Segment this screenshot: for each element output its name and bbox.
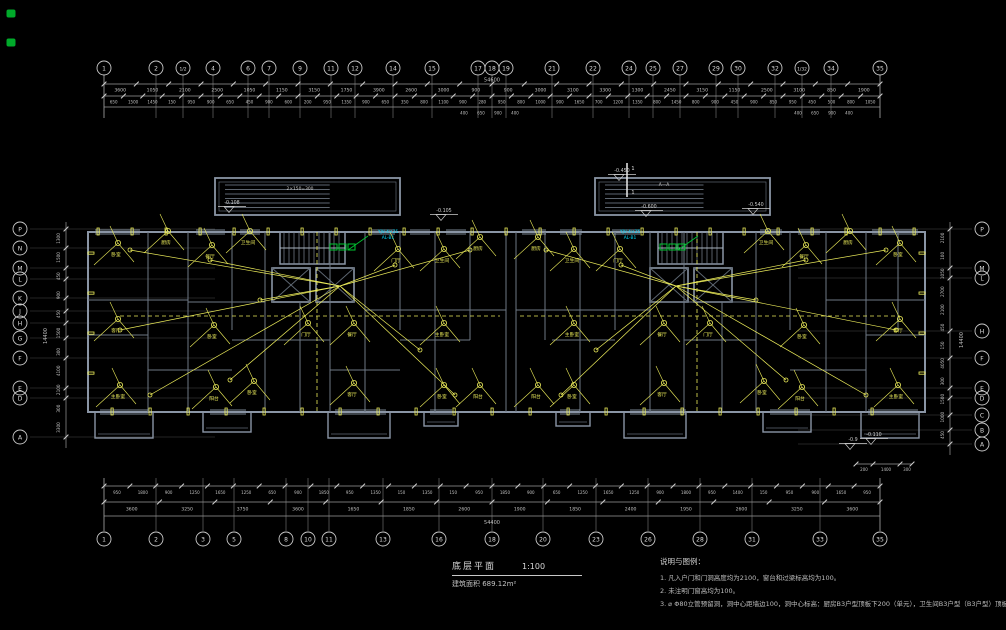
cad-text: 500 xyxy=(828,100,836,105)
cad-text: P xyxy=(18,226,22,233)
cad-text: 850 xyxy=(769,100,777,105)
cad-text: 12 xyxy=(351,66,359,73)
cad-text: 阳台 xyxy=(473,393,483,400)
cad-text: 450 xyxy=(56,272,61,280)
cad-text: 950 xyxy=(789,100,797,105)
cad-text: 1250 xyxy=(241,490,252,495)
cad-text: P xyxy=(980,226,984,233)
cad-text: 1450 xyxy=(147,100,158,105)
cad-text: 1050 xyxy=(147,88,159,94)
cad-text: 1650 xyxy=(348,507,360,513)
notes-title: 说明与图例： xyxy=(660,556,1006,567)
cad-text: M xyxy=(17,265,22,272)
cad-text: 餐厅 xyxy=(205,253,215,260)
cad-text: 150 xyxy=(168,100,176,105)
cad-text: 客厅 xyxy=(347,391,357,398)
cad-text: 2600 xyxy=(458,507,470,513)
cad-text: 1750 xyxy=(341,88,353,94)
cad-text: 1250 xyxy=(629,490,640,495)
cad-text: 650 xyxy=(811,111,819,116)
cad-text: 1500 xyxy=(128,100,139,105)
cad-text: F xyxy=(18,355,22,362)
cad-text: 2 xyxy=(154,537,158,544)
cad-text: 9 xyxy=(298,66,302,73)
cad-text: 800 xyxy=(420,100,428,105)
cad-text: 1850 xyxy=(319,490,330,495)
cad-text: 450 xyxy=(808,100,816,105)
cad-text: -0.105 xyxy=(436,208,451,214)
cad-text: 客厅 xyxy=(111,327,121,334)
cad-text: 卫生间 xyxy=(241,239,256,246)
cad-text: 300 xyxy=(56,348,61,356)
cad-text: 卧室 xyxy=(797,333,807,340)
cad-text: 1050 xyxy=(244,88,256,94)
cad-text: -0.600 xyxy=(641,204,656,210)
cad-text: 22 xyxy=(589,66,597,73)
cad-text: 25 xyxy=(649,66,657,73)
cad-text: 4 xyxy=(211,66,215,73)
cad-text: 主卧室 xyxy=(111,393,126,400)
cad-text: 1350 xyxy=(422,490,433,495)
green-marker xyxy=(7,10,15,17)
cad-text: 1300 xyxy=(56,233,61,244)
cad-text: 150 xyxy=(760,490,768,495)
cad-text: 卧室 xyxy=(111,251,121,258)
cad-text: 900 xyxy=(504,88,513,94)
cad-text: 18 xyxy=(488,66,496,73)
cad-text: 900 xyxy=(207,100,215,105)
cad-text: 2600 xyxy=(405,88,417,94)
cad-text: 1650 xyxy=(574,100,585,105)
cad-text: 650 xyxy=(226,100,234,105)
cad-text: 1200 xyxy=(613,100,624,105)
cad-text: 1 xyxy=(631,166,634,172)
cad-text: 1350 xyxy=(341,100,352,105)
cad-text: 卧室 xyxy=(567,393,577,400)
cad-text: 3600 xyxy=(292,507,304,513)
cad-text: 28 xyxy=(696,537,704,544)
cad-text: 950 xyxy=(346,490,354,495)
cad-text: 17 xyxy=(474,66,482,73)
cad-text: 900 xyxy=(471,88,480,94)
cad-text: 35 xyxy=(876,537,884,544)
cad-text: 29 xyxy=(712,66,720,73)
cad-text: 2700 xyxy=(940,286,945,297)
cad-text: 900 xyxy=(656,490,664,495)
cad-text: 24 xyxy=(625,66,633,73)
cad-text: 餐厅 xyxy=(799,253,809,260)
cad-text: 800 xyxy=(653,100,661,105)
cad-text: 300 xyxy=(56,404,61,412)
cad-text: 1050 xyxy=(940,268,945,279)
cad-text: 7 xyxy=(267,66,271,73)
cad-text: 350 xyxy=(401,100,409,105)
cad-text: 卫生间 xyxy=(759,239,774,246)
cad-text: 32 xyxy=(771,66,779,73)
cad-text: 900 xyxy=(294,490,302,495)
cad-text: 950 xyxy=(498,100,506,105)
cad-text: 门厅 xyxy=(613,257,623,264)
cad-text: F xyxy=(980,355,984,362)
cad-text: 1450 xyxy=(671,100,682,105)
cad-text: YJV-4×25 xyxy=(619,229,641,235)
cad-text: 阳台 xyxy=(209,395,219,402)
cad-text: 650 xyxy=(268,490,276,495)
cad-text: 1650 xyxy=(603,490,614,495)
cad-text: 800 xyxy=(847,100,855,105)
cad-text: 1950 xyxy=(680,507,692,513)
cad-text: 14400 xyxy=(43,328,49,344)
cad-text: 900 xyxy=(828,111,836,116)
cad-text: 450 xyxy=(56,310,61,318)
notes-block: 说明与图例： 1. 凡入户门和门洞高度均为2100，窗台和过梁标高均为100。 … xyxy=(660,556,1006,611)
cad-text: AL-B1 xyxy=(382,235,395,241)
cad-text: 3000 xyxy=(535,88,547,94)
cad-text: 10 xyxy=(304,537,312,544)
cad-text: 2500 xyxy=(211,88,223,94)
cad-text: 150 xyxy=(449,490,457,495)
cad-text: 1400 xyxy=(733,490,744,495)
cad-text: YJV-4×25 xyxy=(377,229,399,235)
cad-text: 主卧室 xyxy=(435,331,450,338)
cad-text: 54400 xyxy=(484,520,500,526)
cad-text: 950 xyxy=(187,100,195,105)
title-block: 底层平面1:100 建筑面积 689.12m² xyxy=(452,554,662,589)
cad-text: 1650 xyxy=(836,490,847,495)
cad-text: 4100 xyxy=(56,365,61,376)
cad-text: 850 xyxy=(827,88,836,94)
title-underline xyxy=(452,575,582,576)
cad-text: G xyxy=(18,335,23,342)
cad-text: 21 xyxy=(548,66,556,73)
cad-text: 650 xyxy=(381,100,389,105)
cad-text: 卧室 xyxy=(437,393,447,400)
cad-text: 3100 xyxy=(567,88,579,94)
cad-text: 1650 xyxy=(215,490,226,495)
cad-text: -0.9 xyxy=(848,437,857,443)
cad-text: 300 xyxy=(940,377,945,385)
cad-text: B xyxy=(980,427,984,434)
cad-text: C xyxy=(980,412,984,419)
cad-text: D xyxy=(18,395,23,402)
cad-text: 6 xyxy=(246,66,250,73)
cad-text: 2 xyxy=(154,66,158,73)
cad-text: 54600 xyxy=(484,78,500,84)
cad-text: 厨房 xyxy=(161,239,171,246)
cad-text: 2100 xyxy=(940,232,945,243)
cad-text: 1150 xyxy=(729,88,741,94)
cad-text: 2450 xyxy=(664,88,676,94)
cad-text: H xyxy=(18,320,23,327)
cad-text: 1300 xyxy=(632,88,644,94)
cad-text: 3600 xyxy=(114,88,126,94)
cad-text: 餐厅 xyxy=(347,331,357,338)
green-marker xyxy=(7,39,15,46)
cad-text: 卧室 xyxy=(247,389,257,396)
cad-text: 2100 xyxy=(940,304,945,315)
cad-text: 19 xyxy=(502,66,510,73)
cad-text: 900 xyxy=(165,490,173,495)
cad-text: 900 xyxy=(527,490,535,495)
cad-text: 3750 xyxy=(237,507,249,513)
cad-text: 2100 xyxy=(56,384,61,395)
cad-text: 950 xyxy=(863,490,871,495)
cad-text: 8 xyxy=(284,537,288,544)
cad-text: 150 xyxy=(940,341,945,349)
cad-text: 800 xyxy=(517,100,525,105)
cad-text: 900 xyxy=(556,100,564,105)
cad-text: N xyxy=(18,245,23,252)
cad-text: 900 xyxy=(711,100,719,105)
cad-text: 1050 xyxy=(865,100,876,105)
cad-text: 34 xyxy=(827,66,835,73)
cad-text: -0.108 xyxy=(224,200,239,206)
cad-text: 客厅 xyxy=(657,391,667,398)
cad-text: 阳台 xyxy=(531,393,541,400)
cad-text: 3900 xyxy=(373,88,385,94)
cad-text: 3150 xyxy=(696,88,708,94)
cad-text: 20 xyxy=(539,537,547,544)
cad-text: 1900 xyxy=(858,88,870,94)
cad-text: 3150 xyxy=(308,88,320,94)
cad-text: 门厅 xyxy=(301,331,311,338)
cad-text: 5 xyxy=(232,537,236,544)
cad-text: 26 xyxy=(644,537,652,544)
cad-text: 厨房 xyxy=(473,245,483,252)
cad-text: 3300 xyxy=(56,422,61,433)
cad-text: 1900 xyxy=(514,507,526,513)
drawing-scale: 1:100 xyxy=(522,562,545,571)
cad-text: 15 xyxy=(428,66,436,73)
cad-text: 900 xyxy=(362,100,370,105)
cad-text: 450 xyxy=(731,100,739,105)
cad-text: 400 xyxy=(794,111,802,116)
cad-text: 18 xyxy=(488,537,496,544)
floor-plan-canvas: 3600105021002500105011503150175039002600… xyxy=(0,0,1006,630)
cad-text: 1250 xyxy=(189,490,200,495)
cad-text: 卧室 xyxy=(757,389,767,396)
cad-text: 300 xyxy=(903,467,911,472)
cad-text: A—A xyxy=(659,182,669,188)
cad-text: J xyxy=(18,308,21,315)
cad-text: 1850 xyxy=(569,507,581,513)
cad-text: 门厅 xyxy=(391,257,401,264)
cad-text: 1000 xyxy=(940,411,945,422)
cad-text: 900 xyxy=(265,100,273,105)
cad-text: 3 xyxy=(201,537,205,544)
cad-text: 1400 xyxy=(881,467,892,472)
cad-text: 2×150=300 xyxy=(287,186,314,192)
cad-text: 3000 xyxy=(438,88,450,94)
cad-text: 1100 xyxy=(438,100,449,105)
cad-text: 1350 xyxy=(632,100,643,105)
cad-text: 1 xyxy=(102,66,106,73)
cad-text: 16 xyxy=(435,537,443,544)
cad-text: 35 xyxy=(876,66,884,73)
cad-text: 卧室 xyxy=(207,333,217,340)
note-item: 1. 凡入户门和门洞高度均为2100，窗台和过梁标高均为100。 xyxy=(660,572,1006,585)
cad-text: 1500 xyxy=(56,327,61,338)
cad-text: 主卧室 xyxy=(565,331,580,338)
cad-text: 2100 xyxy=(179,88,191,94)
cad-text: 600 xyxy=(284,100,292,105)
cad-text: 1000 xyxy=(535,100,546,105)
cad-text: 13 xyxy=(379,537,387,544)
cad-text: 14400 xyxy=(959,332,965,348)
cad-text: 1 xyxy=(631,190,634,196)
cad-text: 3600 xyxy=(126,507,138,513)
cad-text: 30 xyxy=(734,66,742,73)
cad-text: 650 xyxy=(553,490,561,495)
cad-text: 餐厅 xyxy=(657,331,667,338)
cad-text: 门厅 xyxy=(703,331,713,338)
cad-text: 主卧室 xyxy=(889,393,904,400)
cad-text: 3600 xyxy=(846,507,858,513)
cad-text: 1850 xyxy=(403,507,415,513)
cad-text: 1500 xyxy=(940,394,945,405)
cad-text: 1 xyxy=(102,537,106,544)
cad-text: 31 xyxy=(748,537,756,544)
cad-text: D xyxy=(980,395,985,402)
cad-text: 2600 xyxy=(736,507,748,513)
cad-text: 厨房 xyxy=(843,239,853,246)
cad-text: 14 xyxy=(389,66,397,73)
cad-text: 3300 xyxy=(599,88,611,94)
building-area-note: 建筑面积 689.12m² xyxy=(452,579,662,589)
cad-text: 900 xyxy=(494,111,502,116)
cad-text: H xyxy=(980,328,985,335)
note-item: 2. 未注明门窗高均为100。 xyxy=(660,585,1006,598)
cad-text: 400 xyxy=(511,111,519,116)
drawing-title: 底层平面 xyxy=(452,559,496,572)
cad-text: 950 xyxy=(708,490,716,495)
cad-text: 900 xyxy=(459,100,467,105)
cad-text: 1800 xyxy=(681,490,692,495)
cad-text: 3250 xyxy=(791,507,803,513)
cad-text: 2500 xyxy=(761,88,773,94)
cad-text: 150 xyxy=(398,490,406,495)
cad-text: 卫生间 xyxy=(435,257,450,264)
cad-text: AL-B1 xyxy=(624,235,637,241)
cad-text: 950 xyxy=(786,490,794,495)
cad-text: 200 xyxy=(304,100,312,105)
cad-text: 800 xyxy=(692,100,700,105)
cad-text: 33 xyxy=(816,537,824,544)
cad-text: 3250 xyxy=(181,507,193,513)
cad-text: 900 xyxy=(56,291,61,299)
cad-text: 280 xyxy=(478,100,486,105)
cad-text: 900 xyxy=(812,490,820,495)
cad-text: 400 xyxy=(460,111,468,116)
cad-text: 阳台 xyxy=(795,395,805,402)
cad-text: 1/2 xyxy=(179,67,186,73)
cad-text: 1250 xyxy=(577,490,588,495)
cad-text: 400 xyxy=(845,111,853,116)
cad-text: 1500 xyxy=(56,252,61,263)
note-item: 3. ⌀ Φ80立管预留洞，洞中心距墙边100，洞中心标高：厨房B3户型顶板下2… xyxy=(660,598,1006,611)
cad-text: 1/32 xyxy=(797,67,807,73)
cad-text: 450 xyxy=(246,100,254,105)
cad-text: 450 xyxy=(940,431,945,439)
cad-text: 1800 xyxy=(138,490,149,495)
cad-text: 950 xyxy=(323,100,331,105)
cad-text: 27 xyxy=(676,66,684,73)
cad-text: 2400 xyxy=(625,507,637,513)
cad-text: 厨房 xyxy=(531,245,541,252)
cad-text: 4050 xyxy=(940,358,945,369)
cad-text: 1350 xyxy=(371,490,382,495)
cad-text: 950 xyxy=(475,490,483,495)
cad-text: 650 xyxy=(477,111,485,116)
paper-background xyxy=(0,0,1006,630)
cad-text: 客厅 xyxy=(893,327,903,334)
cad-text: 卧室 xyxy=(893,251,903,258)
cad-text: 450 xyxy=(940,323,945,331)
cad-text: 23 xyxy=(592,537,600,544)
cad-text: -0.110 xyxy=(866,432,881,438)
cad-text: 950 xyxy=(113,490,121,495)
cad-text: 650 xyxy=(110,100,118,105)
cad-text: 11 xyxy=(325,537,333,544)
cad-text: 200 xyxy=(860,467,868,472)
cad-text: 11 xyxy=(327,66,335,73)
cad-text: 1850 xyxy=(500,490,511,495)
cad-text: 卫生间 xyxy=(565,257,580,264)
cad-text: -0.540 xyxy=(748,202,763,208)
cad-text: 100 xyxy=(940,252,945,260)
cad-text: 1150 xyxy=(276,88,288,94)
cad-text: 900 xyxy=(750,100,758,105)
cad-text: 3100 xyxy=(793,88,805,94)
cad-text: 700 xyxy=(595,100,603,105)
